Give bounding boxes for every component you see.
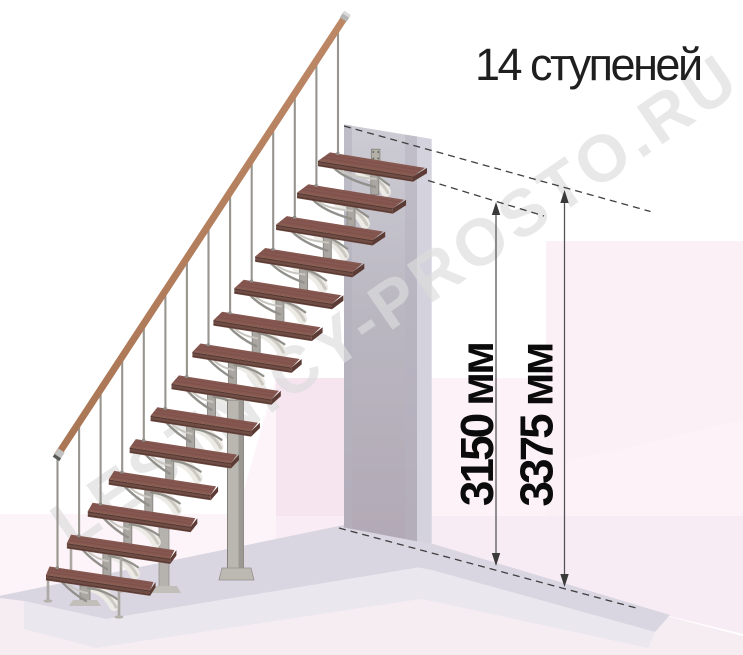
svg-text:3375 мм: 3375 мм [511, 344, 563, 506]
svg-text:14 ступеней: 14 ступеней [475, 39, 701, 90]
svg-text:3150 мм: 3150 мм [451, 344, 503, 506]
